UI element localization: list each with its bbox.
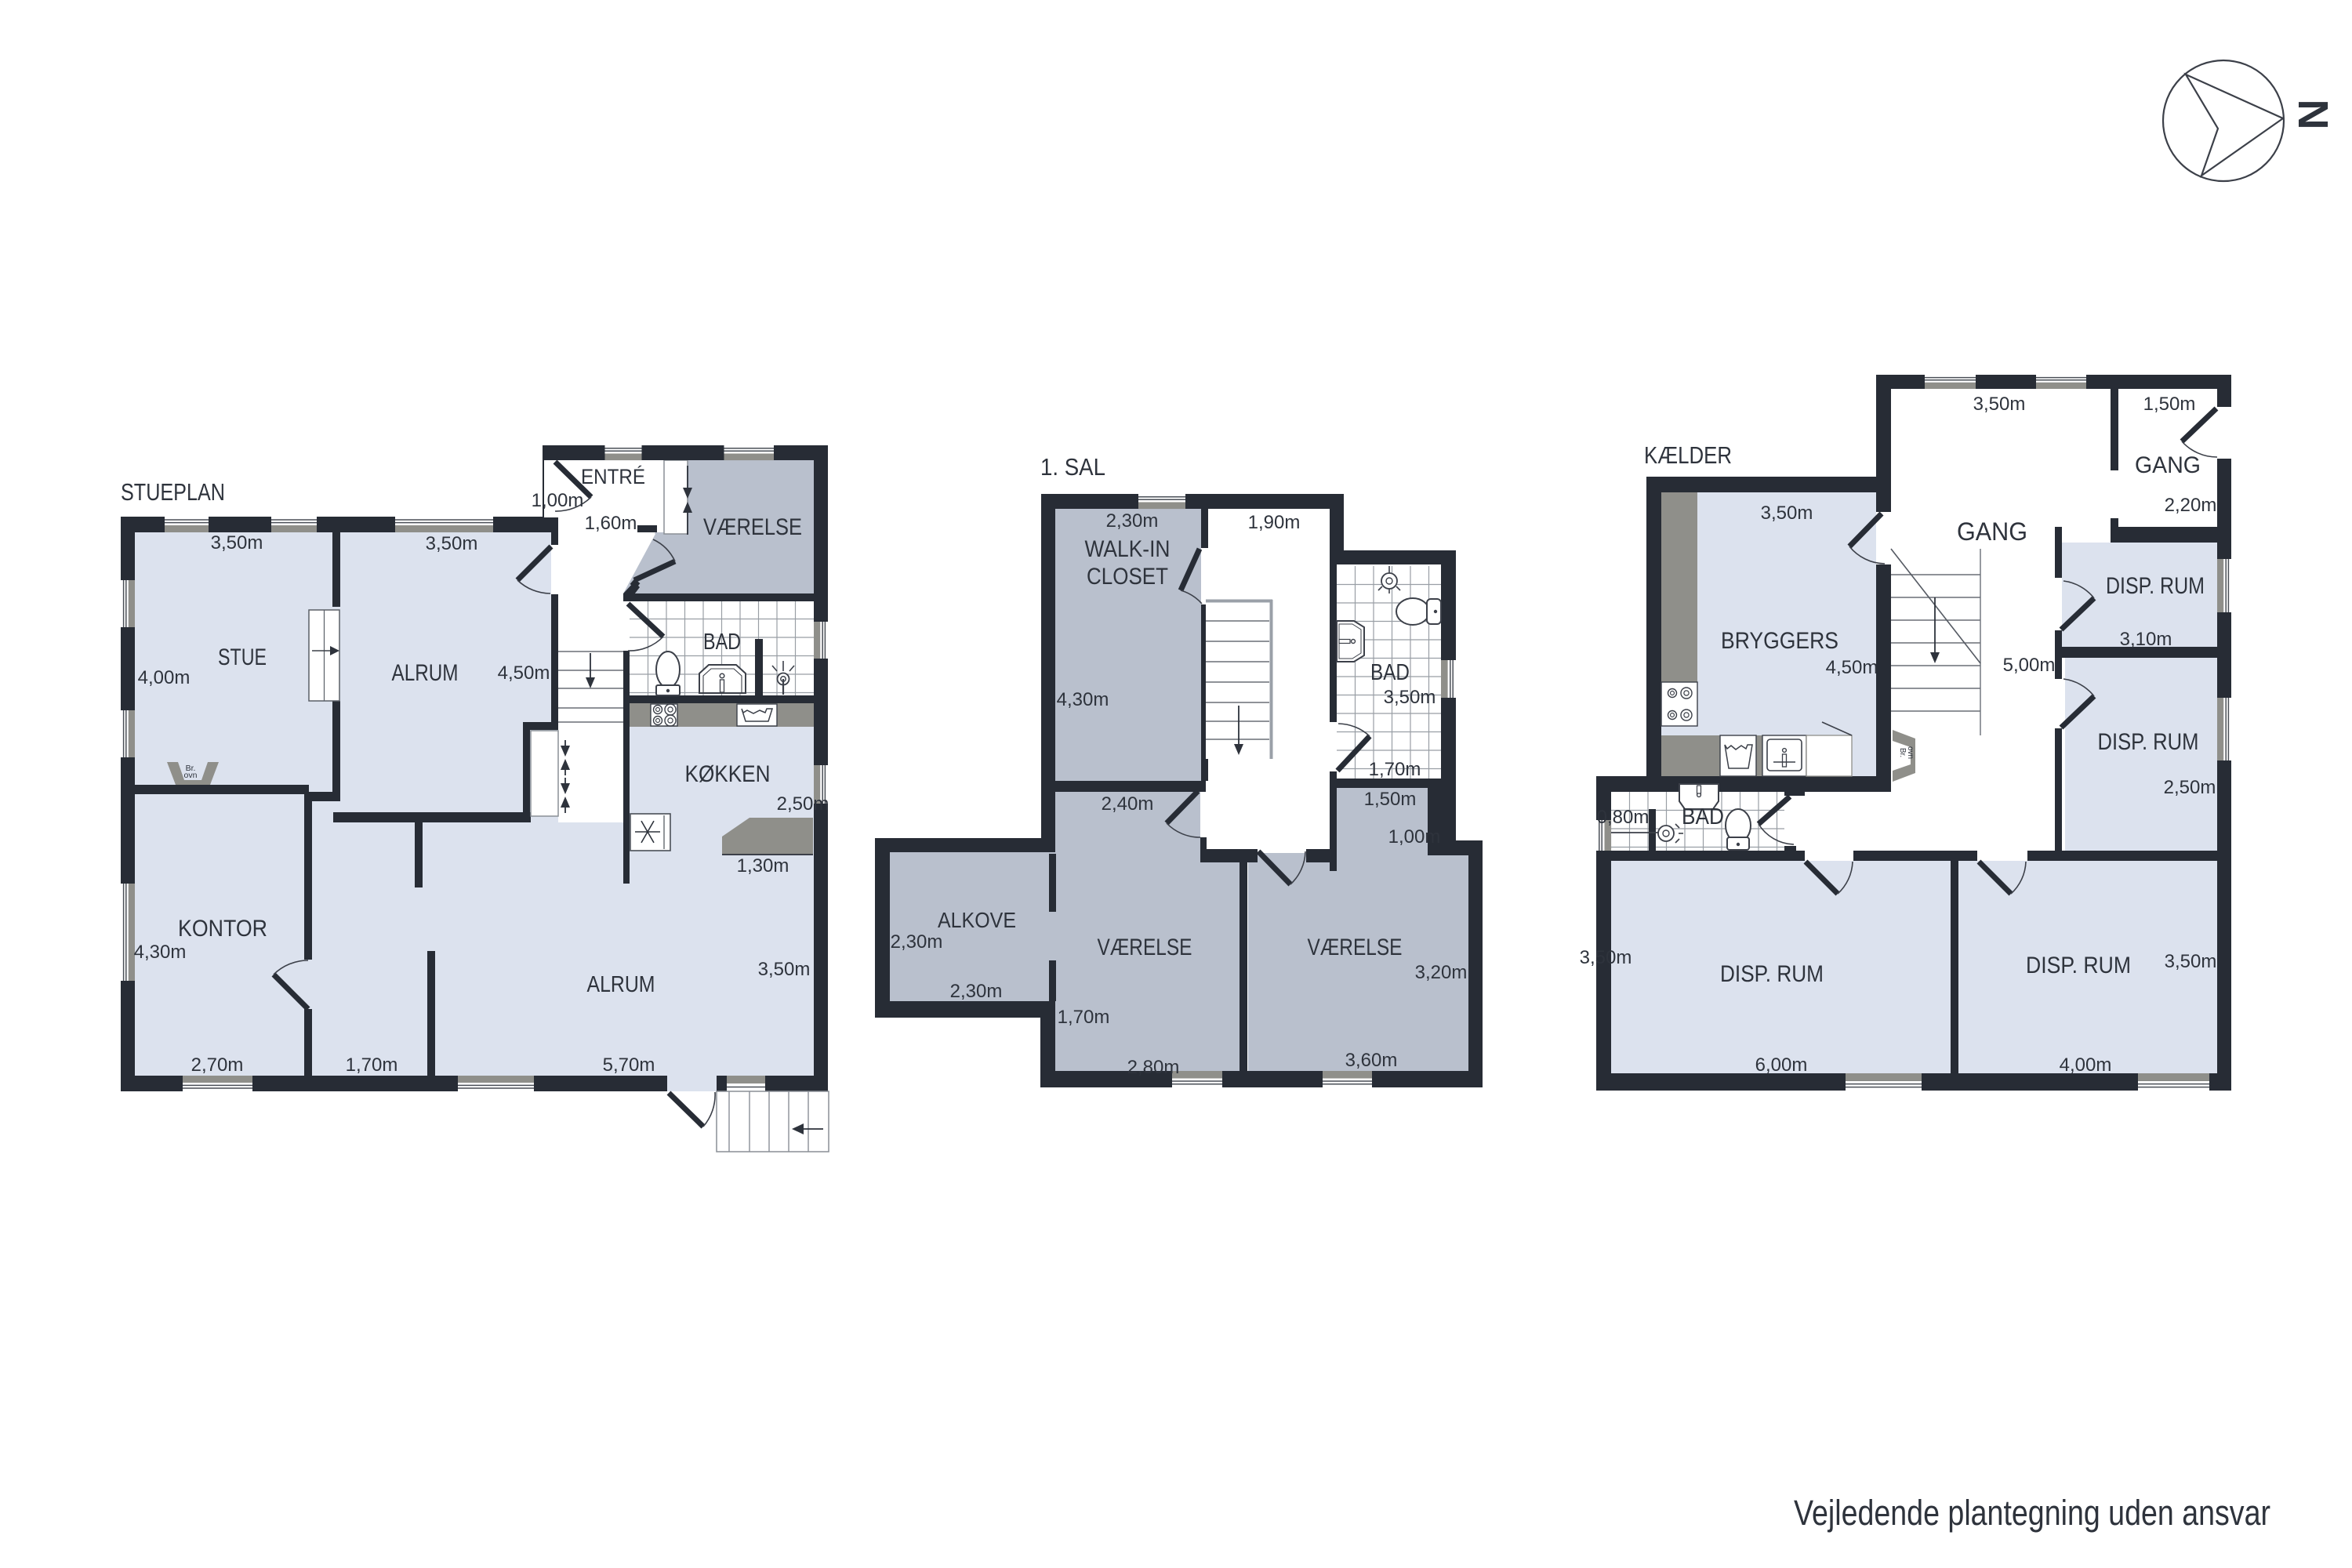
svg-text:3,50m: 3,50m bbox=[211, 532, 263, 554]
svg-text:3,50m: 3,50m bbox=[1973, 394, 2026, 415]
svg-text:1,60m: 1,60m bbox=[585, 513, 637, 534]
svg-text:1,30m: 1,30m bbox=[737, 855, 789, 877]
svg-text:ALKOVE: ALKOVE bbox=[938, 908, 1016, 932]
svg-text:Br.: Br. bbox=[1898, 748, 1907, 757]
svg-text:3,50m: 3,50m bbox=[1761, 503, 1813, 524]
svg-text:3,50m: 3,50m bbox=[758, 959, 811, 980]
svg-text:DISP. RUM: DISP. RUM bbox=[2026, 953, 2131, 978]
svg-text:ovn: ovn bbox=[1906, 746, 1915, 759]
svg-text:Vejledende plantegning uden an: Vejledende plantegning uden ansvar bbox=[1794, 1493, 2270, 1533]
svg-text:1,70m: 1,70m bbox=[1369, 759, 1421, 780]
svg-text:N: N bbox=[2289, 100, 2336, 130]
svg-text:VÆRELSE: VÆRELSE bbox=[1098, 935, 1192, 960]
svg-text:2,50m: 2,50m bbox=[777, 793, 829, 815]
svg-text:WALK-IN: WALK-IN bbox=[1085, 536, 1171, 562]
svg-text:2,50m: 2,50m bbox=[2164, 777, 2216, 798]
svg-text:5,70m: 5,70m bbox=[603, 1054, 655, 1076]
svg-text:0,80m: 0,80m bbox=[1597, 807, 1650, 828]
svg-text:STUEPLAN: STUEPLAN bbox=[121, 478, 225, 506]
svg-text:1,70m: 1,70m bbox=[346, 1054, 398, 1076]
svg-text:VÆRELSE: VÆRELSE bbox=[703, 514, 802, 540]
svg-text:4,00m: 4,00m bbox=[2060, 1054, 2112, 1076]
svg-text:3,50m: 3,50m bbox=[1384, 687, 1436, 708]
svg-text:1,50m: 1,50m bbox=[1364, 789, 1417, 810]
svg-text:4,50m: 4,50m bbox=[1826, 657, 1878, 678]
svg-text:2,70m: 2,70m bbox=[191, 1054, 244, 1076]
svg-text:DISP. RUM: DISP. RUM bbox=[2098, 729, 2199, 755]
svg-text:ALRUM: ALRUM bbox=[392, 660, 459, 686]
svg-text:3,20m: 3,20m bbox=[1415, 962, 1468, 983]
svg-text:3,50m: 3,50m bbox=[2165, 951, 2217, 972]
svg-text:3,50m: 3,50m bbox=[1580, 947, 1632, 968]
svg-text:1. SAL: 1. SAL bbox=[1040, 453, 1105, 481]
svg-text:1,50m: 1,50m bbox=[2143, 394, 2196, 415]
svg-text:4,30m: 4,30m bbox=[1057, 689, 1109, 710]
svg-text:1,70m: 1,70m bbox=[1058, 1007, 1110, 1028]
svg-text:GANG: GANG bbox=[1957, 517, 2027, 546]
svg-text:3,50m: 3,50m bbox=[426, 533, 478, 554]
svg-text:CLOSET: CLOSET bbox=[1087, 564, 1168, 590]
svg-text:2,30m: 2,30m bbox=[950, 981, 1003, 1002]
svg-text:2,80m: 2,80m bbox=[1127, 1057, 1180, 1078]
svg-text:6,00m: 6,00m bbox=[1755, 1054, 1808, 1076]
svg-text:BAD: BAD bbox=[1370, 660, 1410, 685]
svg-text:DISP. RUM: DISP. RUM bbox=[2106, 573, 2205, 599]
svg-text:5,00m: 5,00m bbox=[2003, 655, 2056, 676]
svg-text:2,30m: 2,30m bbox=[1106, 510, 1159, 532]
svg-text:3,60m: 3,60m bbox=[1345, 1050, 1398, 1071]
svg-text:KONTOR: KONTOR bbox=[178, 916, 267, 942]
svg-text:KÆLDER: KÆLDER bbox=[1644, 441, 1732, 469]
svg-text:ENTRÉ: ENTRÉ bbox=[581, 465, 645, 488]
svg-text:2,40m: 2,40m bbox=[1102, 793, 1154, 815]
svg-text:2,30m: 2,30m bbox=[891, 931, 943, 953]
svg-text:KØKKEN: KØKKEN bbox=[685, 761, 771, 787]
svg-text:BAD: BAD bbox=[1682, 804, 1724, 829]
svg-text:BAD: BAD bbox=[703, 630, 741, 655]
svg-text:STUE: STUE bbox=[218, 644, 267, 670]
svg-text:4,00m: 4,00m bbox=[138, 667, 191, 688]
svg-text:1,90m: 1,90m bbox=[1248, 512, 1301, 533]
svg-text:ALRUM: ALRUM bbox=[587, 972, 655, 997]
svg-text:4,50m: 4,50m bbox=[498, 662, 550, 684]
svg-text:GANG: GANG bbox=[2135, 452, 2201, 478]
svg-text:4,30m: 4,30m bbox=[134, 942, 187, 963]
svg-text:1,00m: 1,00m bbox=[1388, 826, 1441, 848]
svg-text:3,10m: 3,10m bbox=[2120, 629, 2172, 650]
svg-text:ovn: ovn bbox=[184, 771, 198, 780]
svg-text:BRYGGERS: BRYGGERS bbox=[1721, 628, 1838, 654]
svg-text:1,00m: 1,00m bbox=[532, 490, 584, 511]
svg-text:DISP. RUM: DISP. RUM bbox=[1720, 961, 1824, 987]
svg-text:2,20m: 2,20m bbox=[2165, 495, 2217, 516]
svg-text:VÆRELSE: VÆRELSE bbox=[1308, 935, 1403, 960]
